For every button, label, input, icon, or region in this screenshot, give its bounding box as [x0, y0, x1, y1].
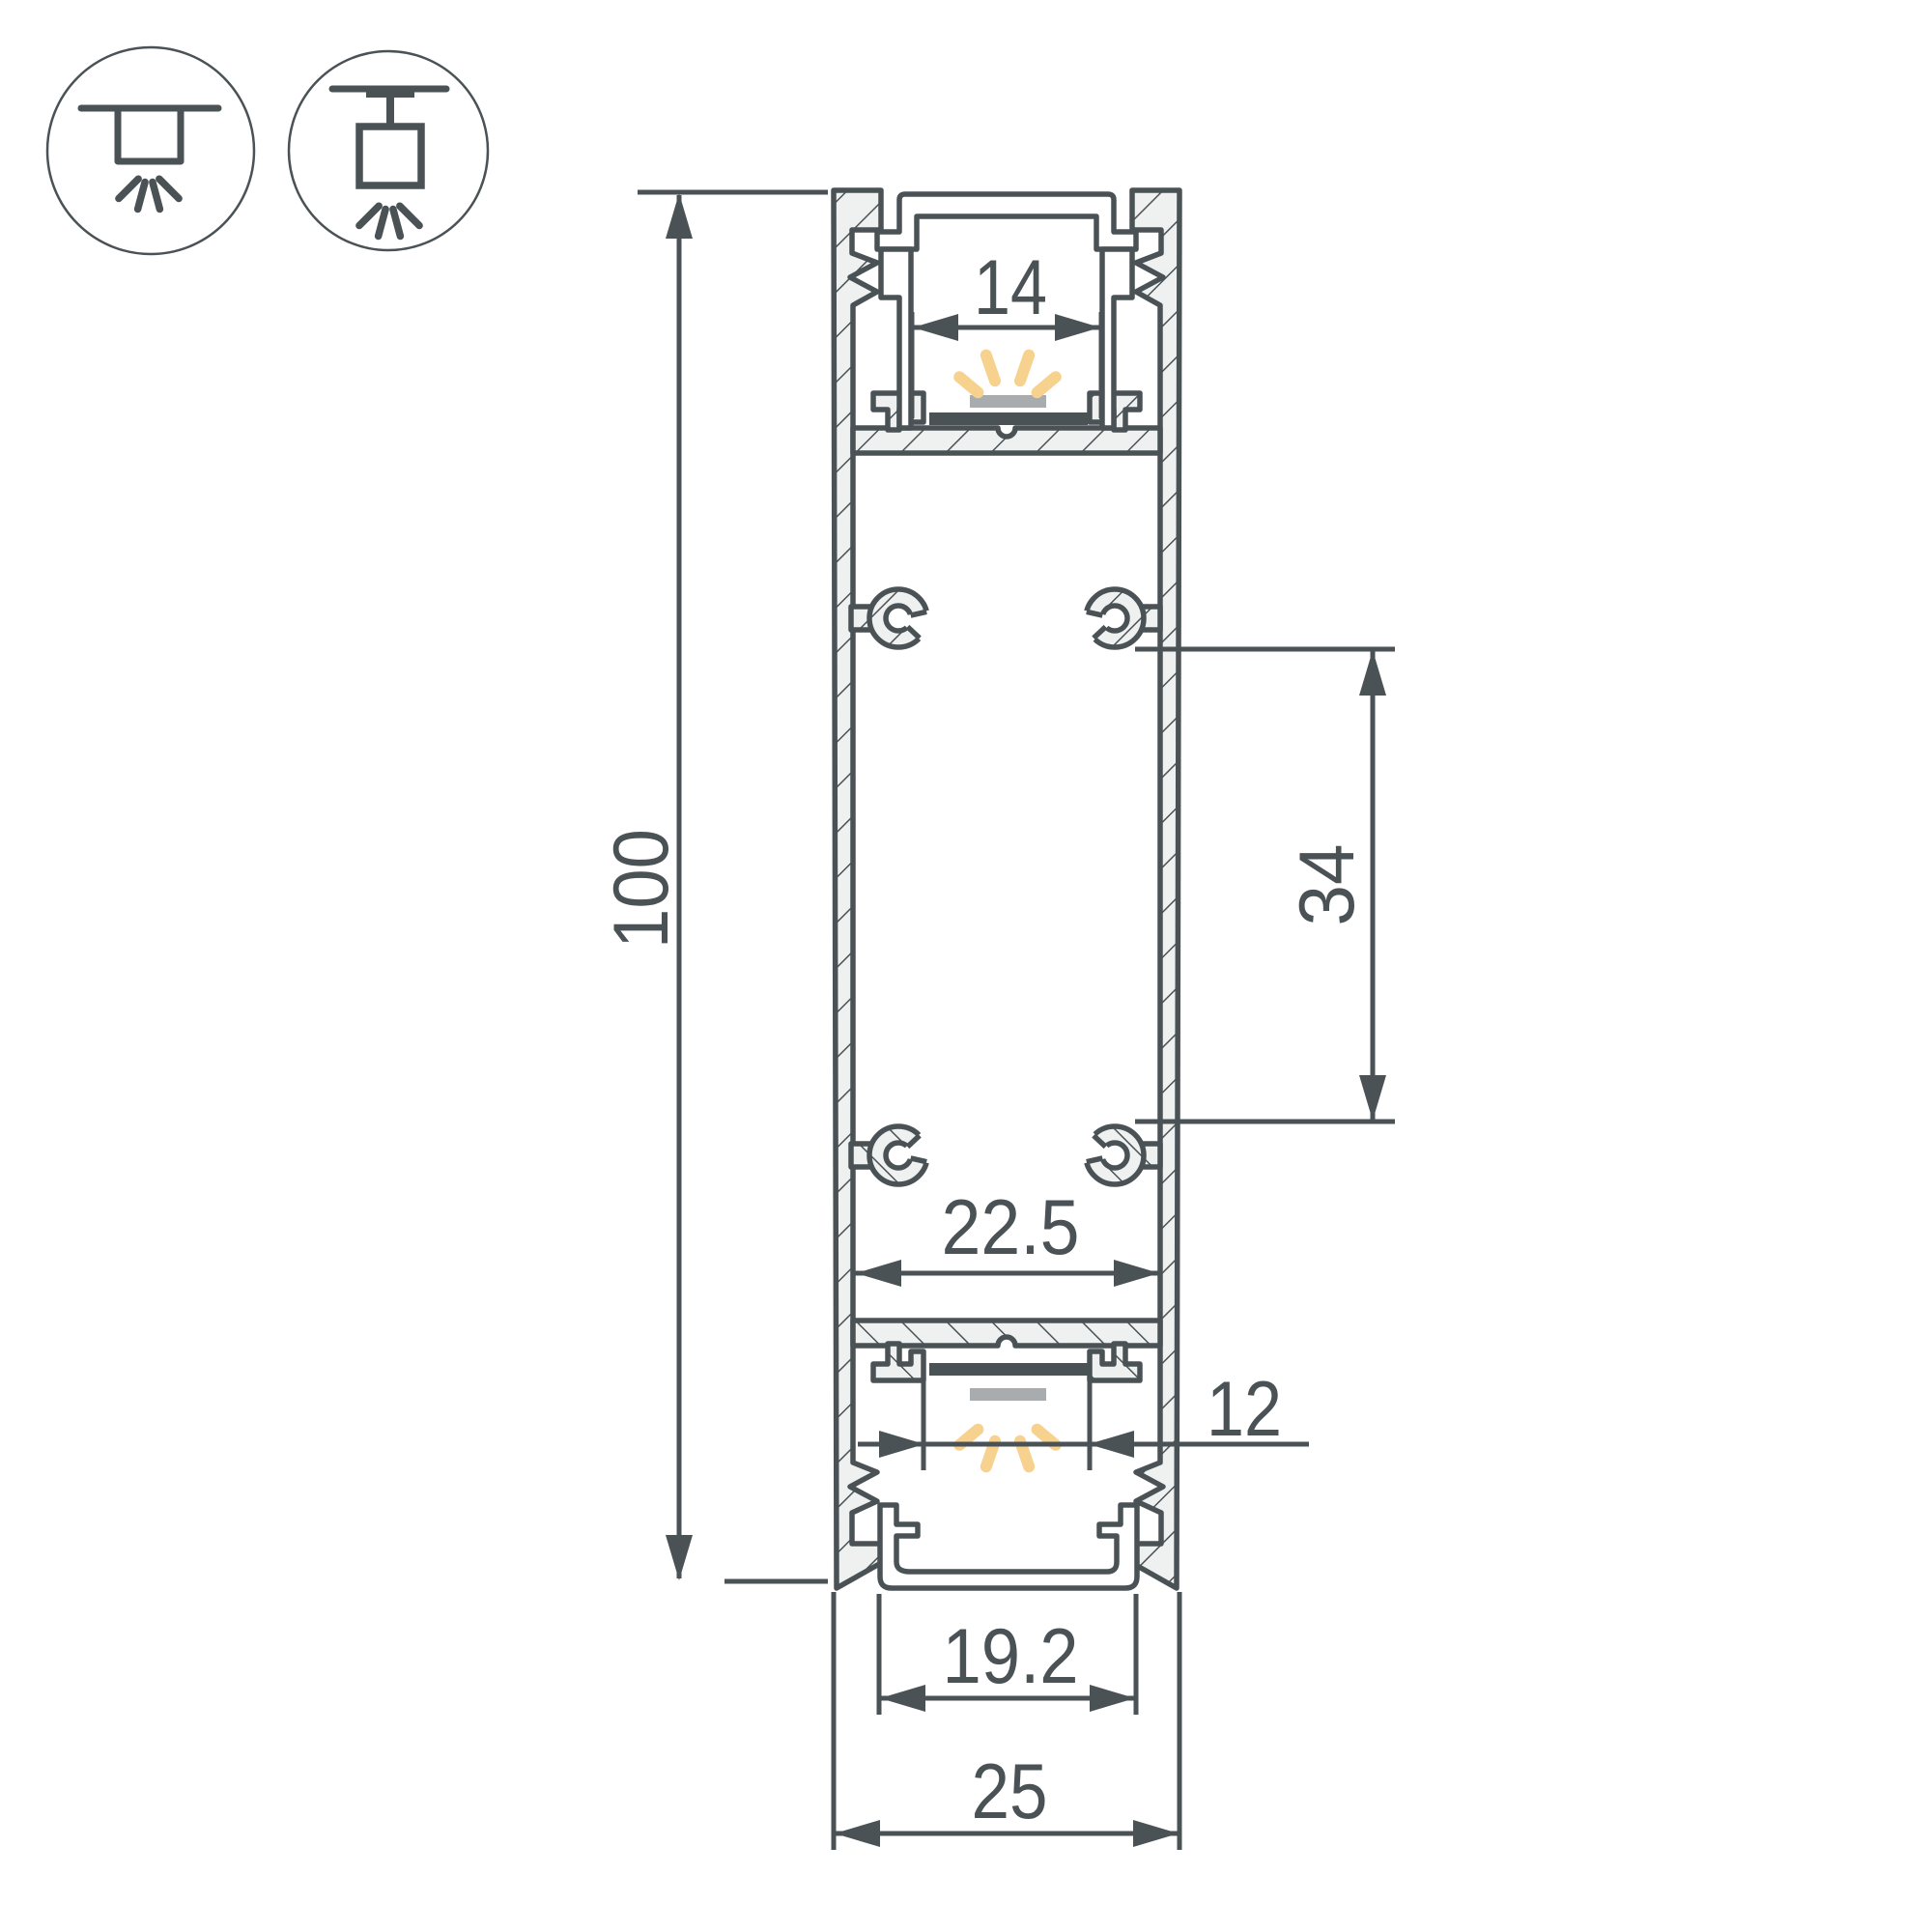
svg-text:100: 100: [598, 829, 685, 949]
svg-text:14: 14: [974, 244, 1047, 331]
svg-text:22.5: 22.5: [942, 1184, 1080, 1271]
svg-text:12: 12: [1207, 1366, 1282, 1453]
svg-text:25: 25: [972, 1748, 1048, 1835]
svg-text:34: 34: [1284, 844, 1371, 926]
svg-text:19.2: 19.2: [943, 1613, 1079, 1700]
